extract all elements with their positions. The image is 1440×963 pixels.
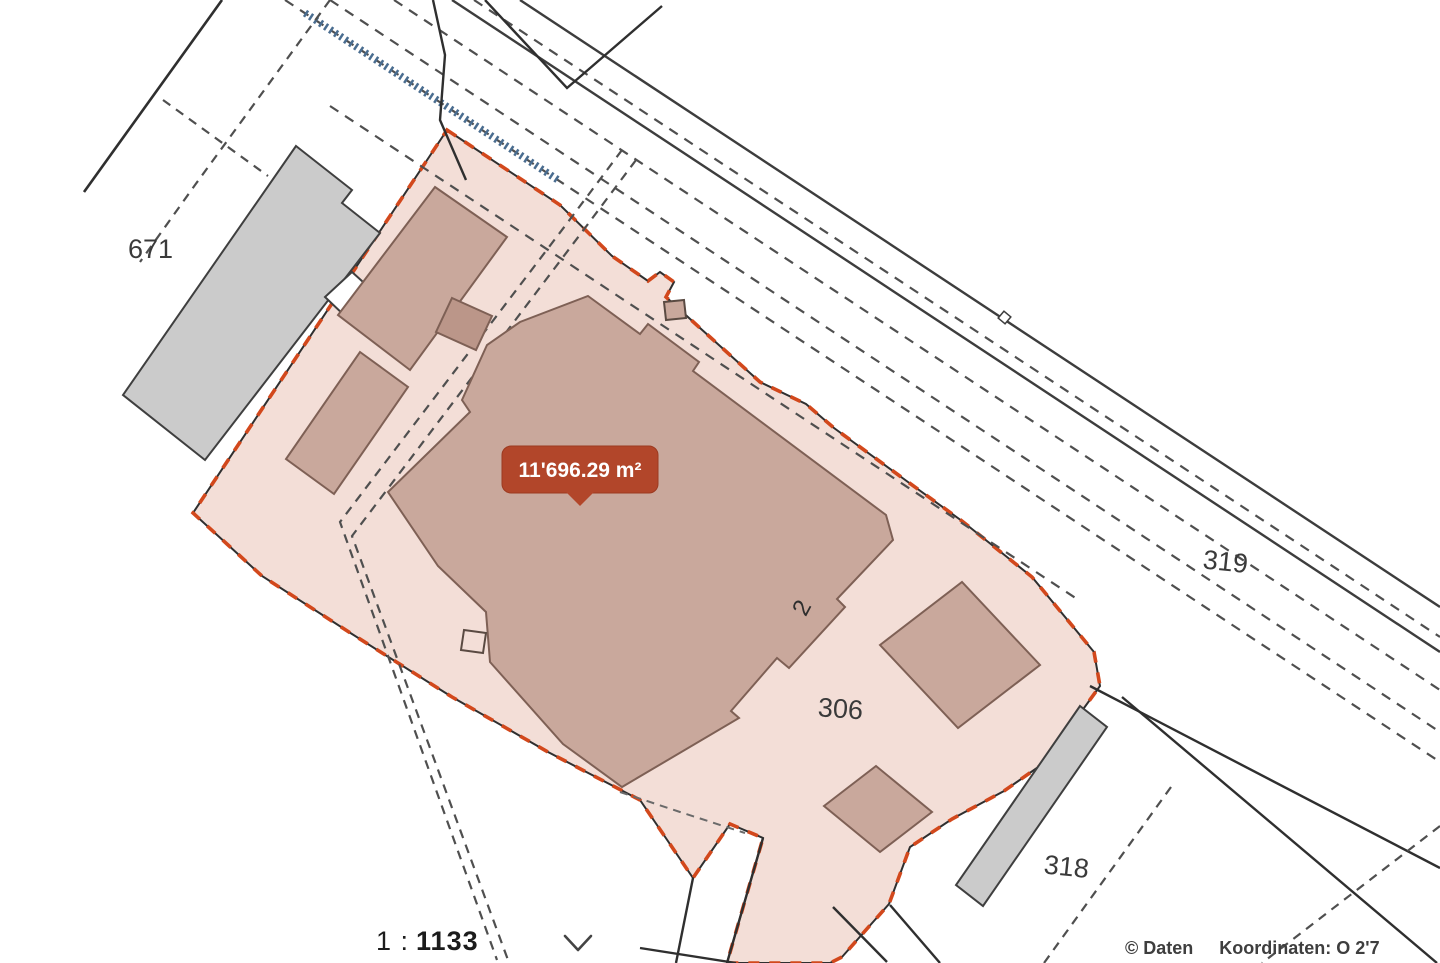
left-dashed-connector — [163, 100, 268, 176]
map-viewport[interactable]: 671 319 306 318 2 11'696.29 m² 1 : 1133 … — [0, 0, 1440, 963]
copyright-text: © Daten — [1125, 938, 1193, 958]
coordinates-text: Koordinaten: O 2'7 — [1219, 938, 1379, 958]
area-tooltip-label: 11'696.29 m² — [519, 459, 642, 482]
scale-value: 1133 — [416, 926, 479, 957]
bottom-cross-segment — [640, 948, 736, 963]
cadastral-map-canvas[interactable]: 671 319 306 318 2 11'696.29 m² — [0, 0, 1440, 963]
chevron-down-icon[interactable] — [561, 931, 595, 955]
parcel-label-306: 306 — [817, 692, 864, 725]
corridor-left-edge — [676, 878, 693, 963]
map-attribution: © DatenKoordinaten: O 2'7 — [1125, 938, 1380, 959]
small-white-square-courtyard — [461, 630, 486, 653]
se-boundary-line-2 — [1122, 697, 1437, 963]
se-road-segment-1 — [890, 905, 940, 963]
scale-prefix: 1 : — [376, 926, 409, 957]
parcel-label-671: 671 — [128, 234, 173, 264]
scale-selector[interactable]: 1 : 1133 — [376, 926, 479, 957]
left-road-line — [84, 0, 222, 192]
shed-on-north-boundary — [664, 300, 686, 320]
chevron-down-glyph — [565, 936, 591, 950]
parcel-label-318: 318 — [1042, 849, 1090, 884]
parcel-label-319: 319 — [1201, 544, 1249, 579]
